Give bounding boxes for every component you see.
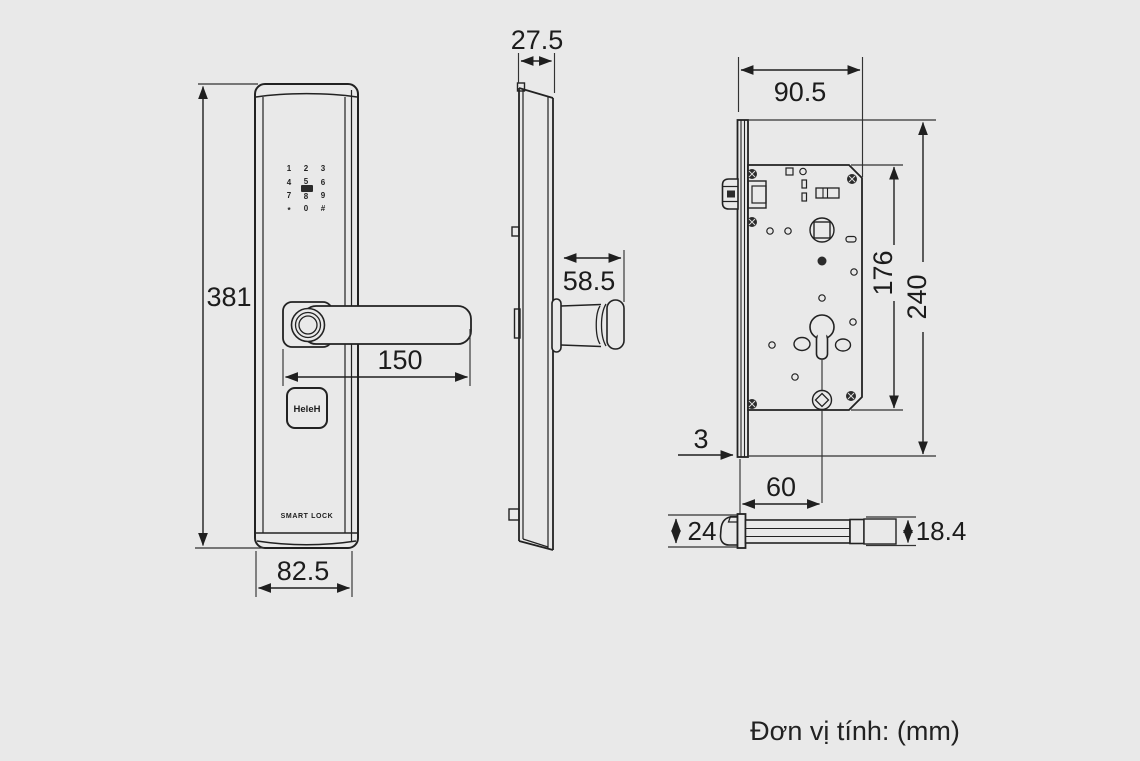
dim-label-3: 3 bbox=[693, 424, 708, 454]
drawing-canvas: 1 2 3 4 5 6 7 8 9 * 0 # HeleH SMART LOCK bbox=[0, 0, 1140, 761]
adjustment-dial bbox=[813, 391, 832, 410]
keypad: 1 2 3 4 5 6 7 8 9 * 0 # bbox=[287, 164, 326, 215]
dim-label-150: 150 bbox=[377, 345, 422, 375]
side-tab-upper bbox=[512, 227, 519, 236]
dim-label-82-5: 82.5 bbox=[277, 556, 330, 586]
latch-faceplate-bar bbox=[738, 514, 746, 548]
front-handle bbox=[283, 302, 471, 347]
latch-tail bbox=[864, 519, 896, 544]
keypad-key-9: 9 bbox=[321, 191, 326, 200]
screw bbox=[747, 169, 757, 179]
side-view: 27.5 58.5 bbox=[509, 25, 624, 550]
dim-height-381: 381 bbox=[195, 84, 264, 548]
side-tab-lower bbox=[509, 509, 519, 520]
dim-case-width-90-5: 90.5 bbox=[739, 57, 863, 177]
technical-drawing-smart-lock: 1 2 3 4 5 6 7 8 9 * 0 # HeleH SMART LOCK bbox=[0, 0, 1140, 761]
keypad-key-4: 4 bbox=[287, 178, 292, 187]
latch-collar bbox=[850, 520, 864, 544]
brand-label: SMART LOCK bbox=[281, 513, 334, 520]
handle-neck-curve-1 bbox=[596, 306, 600, 344]
fingerprint-ring-outer bbox=[292, 309, 325, 342]
dim-label-24: 24 bbox=[688, 516, 717, 546]
screw-plain bbox=[818, 257, 827, 266]
dim-label-60: 60 bbox=[766, 472, 796, 502]
dim-faceplate-thickness-3: 3 bbox=[678, 424, 733, 455]
keypad-key-1: 1 bbox=[287, 164, 292, 173]
keypad-key-8: 8 bbox=[304, 192, 309, 201]
faceplate bbox=[738, 120, 749, 457]
screw bbox=[847, 174, 857, 184]
keypad-key-hash: # bbox=[321, 204, 326, 213]
keypad-key-3: 3 bbox=[321, 164, 326, 173]
lock-case-outline bbox=[748, 165, 862, 410]
dim-label-240: 240 bbox=[902, 274, 932, 319]
side-handle bbox=[552, 299, 624, 352]
unit-note: Đơn vị tính: (mm) bbox=[750, 716, 960, 746]
dim-label-90-5: 90.5 bbox=[774, 77, 827, 107]
latch-bolt-side-view: 24 18.4 bbox=[668, 514, 966, 548]
latch-body bbox=[746, 520, 851, 543]
handle-flange bbox=[552, 299, 561, 352]
dim-width-82-5: 82.5 bbox=[256, 551, 352, 597]
screw bbox=[747, 399, 757, 409]
dim-handle-depth-58-5: 58.5 bbox=[563, 250, 624, 302]
handle-cylinder-top bbox=[561, 305, 601, 307]
keypad-key-5: 5 bbox=[304, 177, 309, 186]
keypad-key-0: 0 bbox=[304, 204, 309, 213]
screw bbox=[747, 217, 757, 227]
dim-label-27-5: 27.5 bbox=[511, 25, 564, 55]
dim-label-58-5: 58.5 bbox=[563, 266, 616, 296]
handle-cylinder-bottom bbox=[561, 345, 601, 347]
side-top-edge bbox=[519, 88, 553, 98]
logo-plate: HeleH bbox=[287, 388, 327, 428]
keypad-display-key bbox=[301, 185, 313, 192]
keypad-key-star: * bbox=[287, 206, 291, 215]
screw bbox=[846, 391, 856, 401]
keypad-key-2: 2 bbox=[304, 164, 309, 173]
keypad-key-6: 6 bbox=[321, 178, 326, 187]
mortise-lock-view: 90.5 176 240 3 60 bbox=[678, 57, 936, 521]
dim-label-18-4: 18.4 bbox=[916, 516, 967, 546]
keypad-key-7: 7 bbox=[287, 191, 292, 200]
handle-knob-end bbox=[607, 300, 624, 349]
dim-backset-60: 60 bbox=[740, 459, 820, 521]
latch-guard-pin bbox=[727, 191, 735, 198]
handle-neck-curve-2 bbox=[602, 304, 607, 346]
dim-label-381: 381 bbox=[206, 282, 251, 312]
dim-label-176: 176 bbox=[868, 250, 898, 295]
front-top-cap-line bbox=[256, 94, 357, 97]
dim-thickness-27-5: 27.5 bbox=[511, 25, 564, 93]
logo-text: HeleH bbox=[294, 404, 321, 415]
front-bottom-edge-line bbox=[257, 541, 356, 545]
front-view: 1 2 3 4 5 6 7 8 9 * 0 # HeleH SMART LOCK bbox=[195, 84, 471, 597]
handle-bar bbox=[303, 306, 471, 344]
